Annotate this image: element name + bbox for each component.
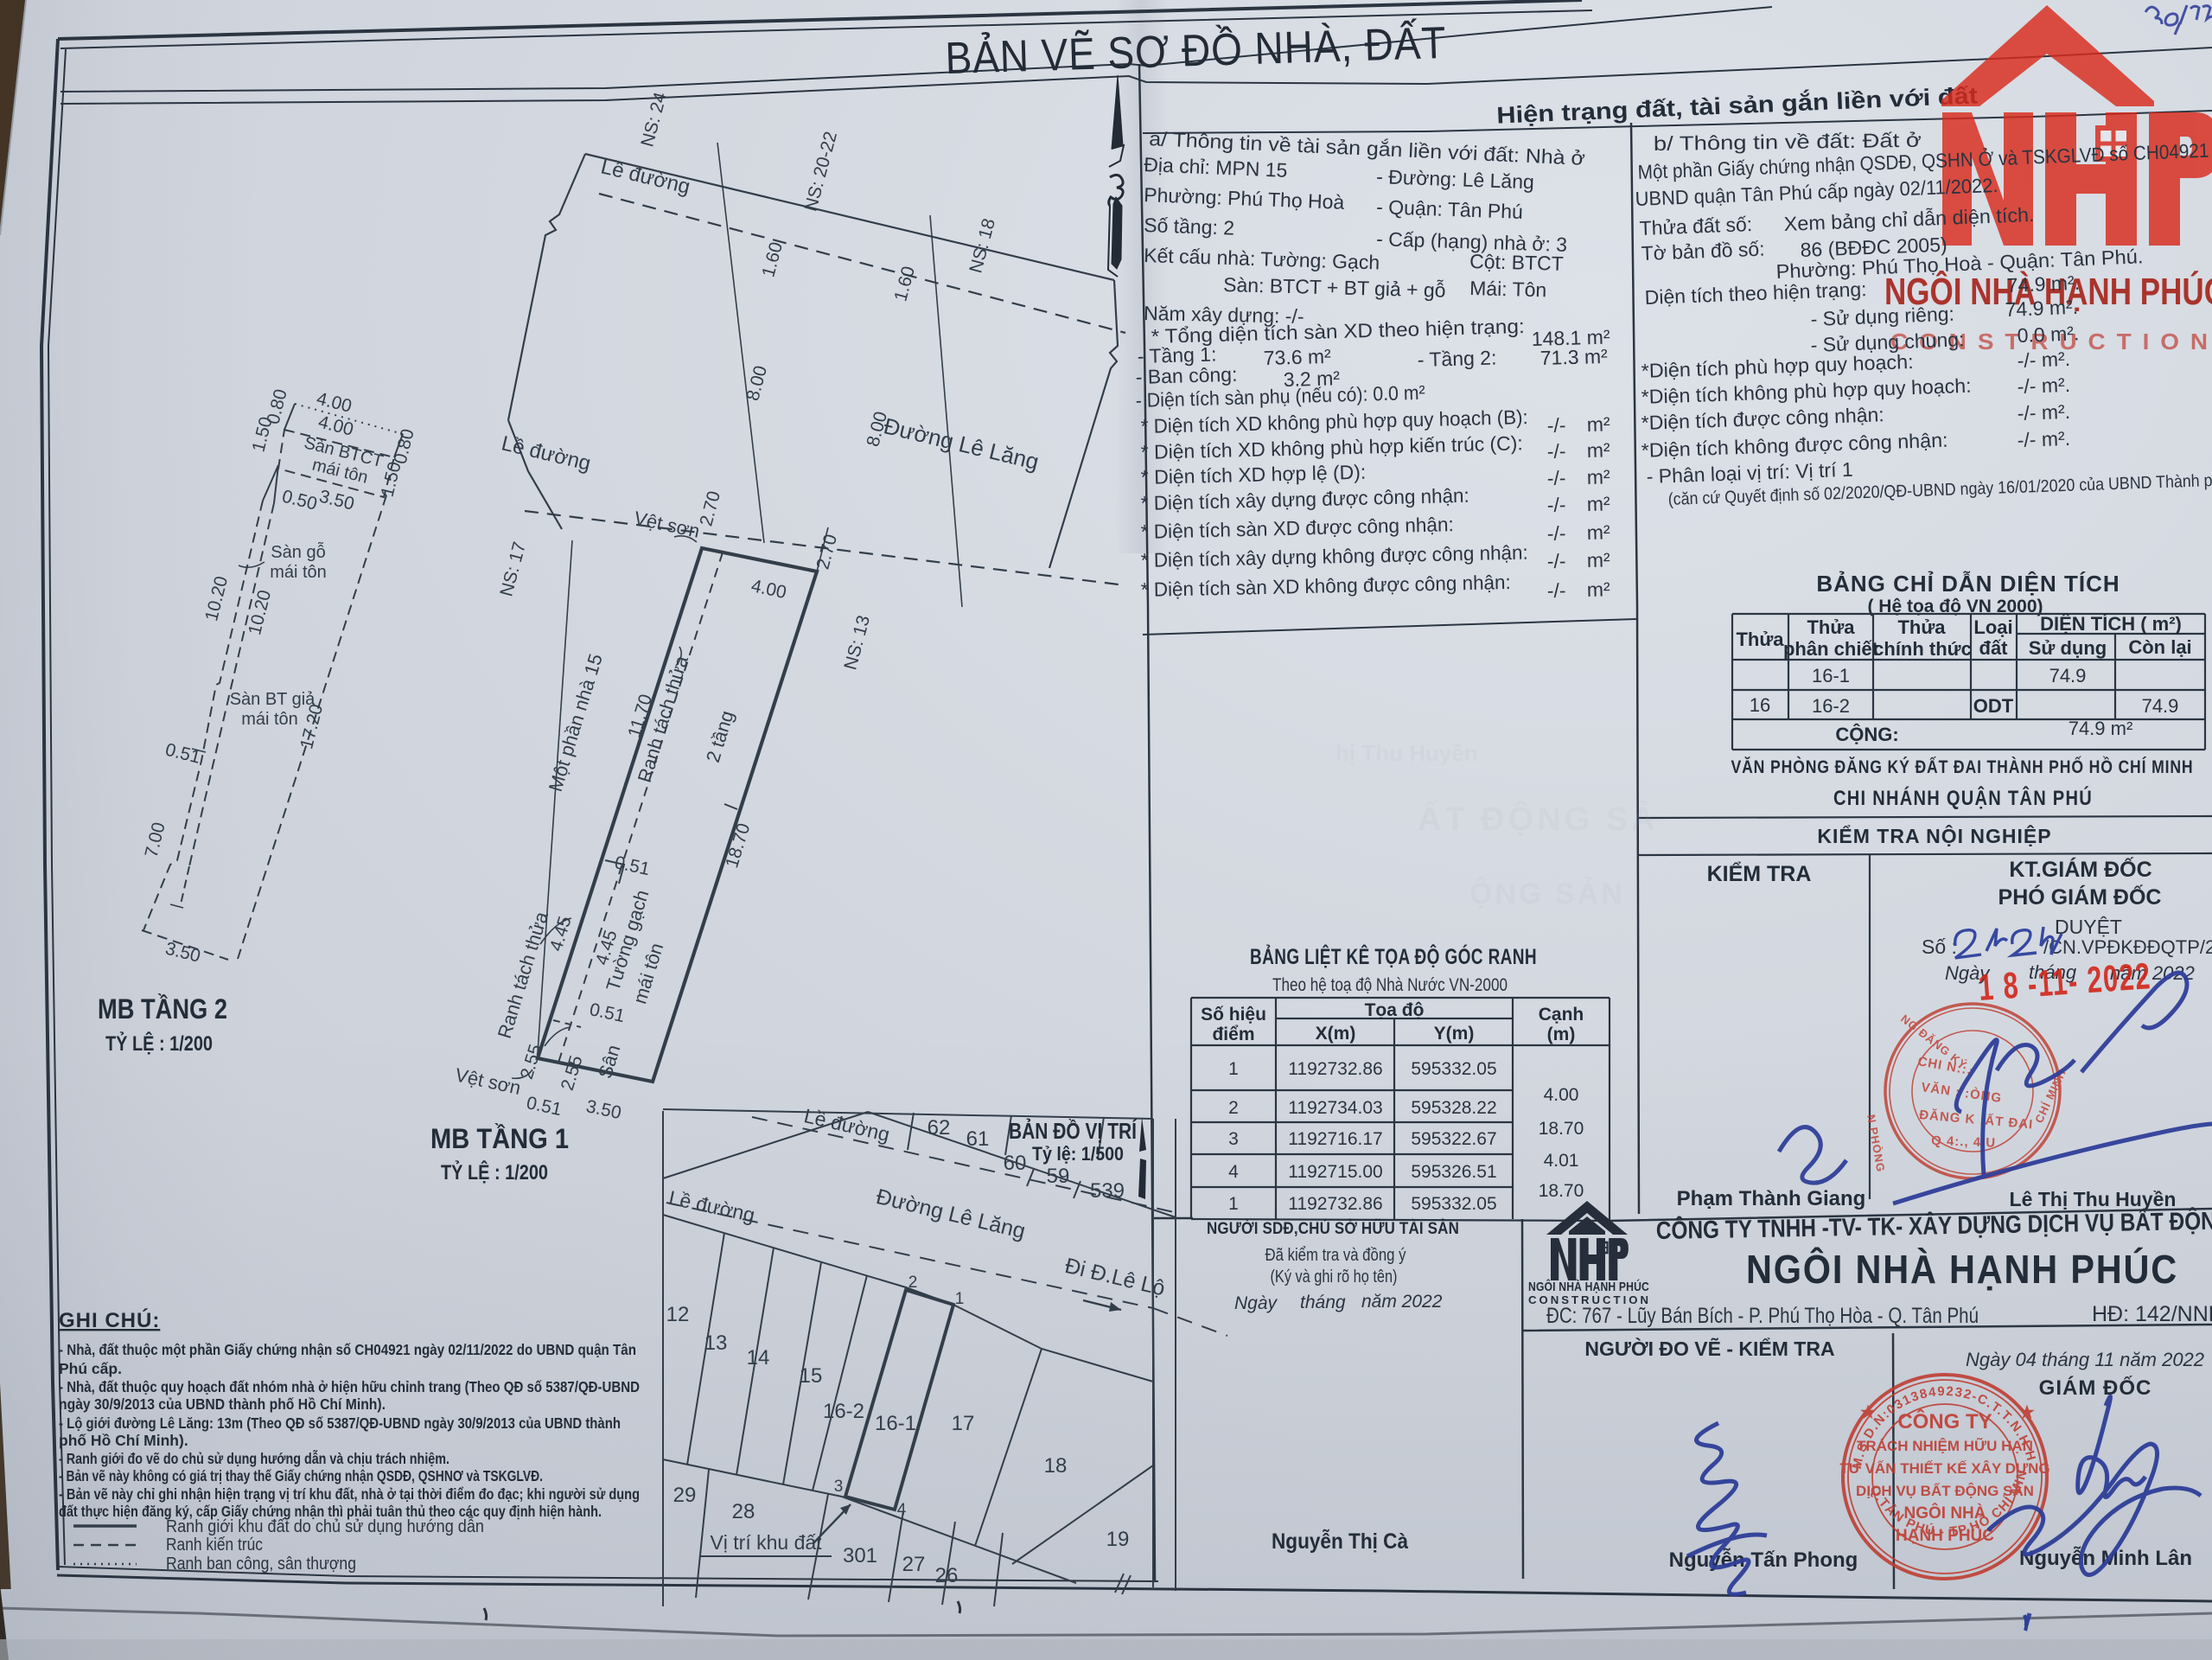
svg-text:Tỷ lệ: 1/500: Tỷ lệ: 1/500: [1032, 1143, 1124, 1165]
svg-text:1192715.00: 1192715.00: [1288, 1162, 1382, 1182]
svg-text:Mái: Tôn: Mái: Tôn: [1469, 277, 1547, 301]
svg-text:GIÁM ĐỐC: GIÁM ĐỐC: [2039, 1376, 2152, 1400]
svg-text:phố Hồ Chí Minh).: phố Hồ Chí Minh).: [59, 1432, 188, 1449]
svg-text:Ngày: Ngày: [1234, 1293, 1278, 1313]
svg-text:Thửa: Thửa: [1807, 616, 1855, 638]
svg-text:74.9: 74.9: [2049, 665, 2087, 686]
svg-text:BẢNG LIỆT KÊ TỌA ĐỘ GÓC RANH: BẢNG LIỆT KÊ TỌA ĐỘ GÓC RANH: [1250, 943, 1537, 969]
svg-text:15: 15: [800, 1364, 823, 1388]
svg-text:Q 4:., 4IU: Q 4:., 4IU: [1931, 1133, 1997, 1151]
svg-text:1192716.17: 1192716.17: [1288, 1129, 1382, 1149]
svg-text:ODT: ODT: [1973, 695, 2014, 717]
svg-text:- Nhà, đất thuộc một phần Giấy: - Nhà, đất thuộc một phần Giấy chứng nhậ…: [59, 1341, 636, 1358]
svg-text:0.0 m².: 0.0 m².: [2017, 322, 2080, 347]
svg-text:60: 60: [1004, 1152, 1027, 1175]
svg-text:- Ranh giới đo vẽ do chủ sử dụ: - Ranh giới đo vẽ do chủ sử dụng hướng d…: [59, 1449, 449, 1467]
svg-text:4: 4: [1228, 1162, 1239, 1182]
svg-text:3: 3: [834, 1478, 844, 1496]
svg-text:-/-: -/-: [1546, 493, 1565, 516]
svg-text:595322.67: 595322.67: [1411, 1129, 1496, 1149]
svg-text:1192732.86: 1192732.86: [1288, 1059, 1382, 1079]
svg-text:hị Thu Huyền: hị Thu Huyền: [1335, 740, 1478, 766]
svg-text:NGƯỜI ĐO VẼ - KIỂM TRA: NGƯỜI ĐO VẼ - KIỂM TRA: [1584, 1337, 1834, 1360]
svg-text:595332.05: 595332.05: [1411, 1194, 1496, 1214]
svg-text:Cạnh: Cạnh: [1539, 1005, 1584, 1025]
svg-text:KT.GIÁM ĐỐC: KT.GIÁM ĐỐC: [2009, 856, 2151, 882]
svg-text:71.3 m²: 71.3 m²: [1539, 345, 1608, 369]
svg-text:16-2: 16-2: [1812, 695, 1850, 717]
svg-text:(m): (m): [1547, 1025, 1576, 1044]
svg-text:Còn lại: Còn lại: [2128, 636, 2191, 658]
svg-text:- Ban công:: - Ban công:: [1135, 363, 1237, 388]
svg-text:NGÔI NHÀ HẠNH PHÚC: NGÔI NHÀ HẠNH PHÚC: [1746, 1247, 2178, 1292]
svg-text:59: 59: [1047, 1165, 1070, 1188]
svg-text:X(m): X(m): [1316, 1024, 1356, 1044]
svg-text:phân chiết: phân chiết: [1783, 638, 1879, 660]
svg-text:18.70: 18.70: [1539, 1181, 1584, 1201]
svg-text:Y(m): Y(m): [1434, 1024, 1475, 1044]
svg-text:ẤT ĐỘNG SẢ: ẤT ĐỘNG SẢ: [1418, 799, 1659, 838]
svg-text:16-1: 16-1: [875, 1412, 916, 1435]
svg-text:Ranh ban công, sân thượng: Ranh ban công, sân thượng: [166, 1555, 356, 1574]
svg-text:Số hiệu: Số hiệu: [1201, 1005, 1266, 1025]
svg-text:Phú cấp.: Phú cấp.: [59, 1360, 122, 1377]
svg-text:VĂN PHÒNG ĐĂNG KÝ ĐẤT ĐAI THÀN: VĂN PHÒNG ĐĂNG KÝ ĐẤT ĐAI THÀNH PHỐ HỒ C…: [1731, 757, 2194, 777]
svg-text:Số tầng: 2: Số tầng: 2: [1144, 214, 1235, 239]
svg-text:Tờ bản đồ số:: Tờ bản đồ số:: [1641, 238, 1765, 265]
svg-text:2: 2: [1228, 1098, 1239, 1118]
svg-text:TRÁCH NHIỆM HỮU HẠN: TRÁCH NHIỆM HỮU HẠN: [1857, 1437, 2033, 1454]
svg-text:Lê Thị Thu Huyền: Lê Thị Thu Huyền: [2010, 1188, 2177, 1210]
svg-text:-/-: -/-: [1546, 521, 1565, 545]
svg-text:3: 3: [1228, 1129, 1239, 1149]
svg-text:TƯ VẤN THIẾT KẾ XÂY DỰNG: TƯ VẤN THIẾT KẾ XÂY DỰNG: [1839, 1460, 2049, 1477]
svg-text:Sàn BT giả: Sàn BT giả: [230, 690, 316, 709]
svg-text:ĐC: 767 - Lũy Bán Bích - P. Ph: ĐC: 767 - Lũy Bán Bích - P. Phú Thọ Hòa …: [1546, 1304, 1979, 1328]
svg-text:Sử dụng: Sử dụng: [2029, 637, 2107, 659]
svg-text:NGÔI NHÀ HẠNH PHÚC: NGÔI NHÀ HẠNH PHÚC: [1528, 1279, 1649, 1294]
svg-text:Phạm Thành Giang: Phạm Thành Giang: [1677, 1187, 1866, 1210]
svg-text:m²: m²: [1586, 438, 1610, 462]
svg-text:301: 301: [843, 1544, 877, 1567]
svg-text:16-1: 16-1: [1812, 665, 1850, 686]
svg-text:- Bản vẽ này không có giá trị: - Bản vẽ này không có giá trị thay thế G…: [59, 1467, 543, 1484]
svg-text:1192734.03: 1192734.03: [1288, 1098, 1382, 1118]
svg-text:595326.51: 595326.51: [1411, 1162, 1496, 1182]
svg-text:CỘNG:: CỘNG:: [1835, 724, 1898, 745]
svg-text:★: ★: [1860, 1403, 1876, 1422]
svg-text:- Bản vẽ này chỉ ghi nhận hiện: - Bản vẽ này chỉ ghi nhận hiện trạng vị …: [59, 1485, 640, 1503]
svg-text:m²: m²: [1586, 520, 1610, 544]
svg-text:Tọa độ: Tọa độ: [1365, 1000, 1425, 1020]
svg-text:74.9 m²: 74.9 m²: [2069, 718, 2133, 739]
svg-text:61: 61: [966, 1127, 990, 1151]
svg-text:m²: m²: [1587, 578, 1611, 601]
svg-text:74.9 m².: 74.9 m².: [2005, 296, 2078, 321]
svg-text:539: 539: [1090, 1179, 1125, 1203]
svg-text:74.9: 74.9: [2142, 695, 2179, 717]
svg-text:Loại: Loại: [1973, 616, 2012, 638]
svg-text:Số :: Số :: [1922, 935, 1957, 958]
svg-text:Vị trí khu đất: Vị trí khu đất: [710, 1531, 822, 1554]
svg-text:mái tôn: mái tôn: [241, 710, 298, 729]
svg-text:KIỂM TRA: KIỂM TRA: [1707, 861, 1812, 886]
svg-text:-/- m².: -/- m².: [2017, 427, 2070, 451]
svg-text:16: 16: [1750, 694, 1770, 716]
svg-text:Ranh giới khu đất do chủ sử dụ: Ranh giới khu đất do chủ sử dụng hướng d…: [166, 1516, 484, 1536]
svg-text:4.01: 4.01: [1544, 1151, 1579, 1171]
svg-text:18: 18: [1044, 1454, 1068, 1478]
svg-text:NGƯỜI SDĐ,CHỦ SỞ HỮU TÀI SẢN: NGƯỜI SDĐ,CHỦ SỞ HỮU TÀI SẢN: [1207, 1219, 1459, 1238]
svg-text:m²: m²: [1586, 492, 1610, 515]
svg-text:năm 2022: năm 2022: [1361, 1292, 1443, 1312]
svg-text:62: 62: [928, 1116, 951, 1140]
svg-text:- Lộ giới đường Lê Lăng: 13m: - Lộ giới đường Lê Lăng: 13m (Theo QĐ số…: [59, 1414, 621, 1432]
svg-text:-/-: -/-: [1546, 466, 1565, 489]
svg-text:tháng: tháng: [1300, 1293, 1346, 1312]
svg-text:26: 26: [935, 1564, 959, 1587]
svg-text:Thửa đất số:: Thửa đất số:: [1639, 213, 1752, 239]
svg-text:/CN.VPĐKĐĐQTP/2022: /CN.VPĐKĐĐQTP/2022: [2043, 936, 2212, 958]
svg-text:74.9 m².: 74.9 m².: [2006, 271, 2080, 297]
svg-text:19: 19: [1106, 1528, 1130, 1551]
svg-text:Nguyễn Thị Cà: Nguyễn Thị Cà: [1272, 1528, 1408, 1554]
svg-text:ngày 30/9/2013 của UBND thành: ngày 30/9/2013 của UBND thành phố Hồ Chí…: [59, 1395, 386, 1413]
svg-text:28: 28: [732, 1500, 755, 1523]
svg-text:18.70: 18.70: [1539, 1119, 1584, 1139]
svg-text:CHI NHÁNH QUẬN TÂN PHÚ: CHI NHÁNH QUẬN TÂN PHÚ: [1833, 786, 2093, 810]
svg-text:mái tôn: mái tôn: [270, 563, 327, 582]
svg-text:TỶ LỆ : 1/200: TỶ LỆ : 1/200: [105, 1031, 213, 1056]
svg-text:27: 27: [902, 1553, 926, 1576]
svg-text:595328.22: 595328.22: [1411, 1098, 1496, 1118]
svg-text:Cột: BTCT: Cột: BTCT: [1469, 250, 1564, 275]
svg-text:- Tầng 2:: - Tầng 2:: [1417, 346, 1496, 371]
svg-text:1: 1: [1228, 1059, 1239, 1079]
svg-text:Nguyễn Minh Lân: Nguyễn Minh Lân: [2019, 1546, 2192, 1570]
svg-text:ỘNG SẢN: ỘNG SẢN: [1469, 877, 1625, 910]
svg-text:HẠNH PHÚC: HẠNH PHÚC: [1896, 1526, 1994, 1545]
svg-text:1192732.86: 1192732.86: [1288, 1194, 1382, 1214]
svg-text:m²: m²: [1586, 465, 1610, 488]
svg-text:1: 1: [1228, 1194, 1239, 1214]
svg-text:-/- m².: -/- m².: [2017, 373, 2070, 398]
svg-text:-/-: -/-: [1547, 579, 1566, 602]
svg-text:MB TẦNG 2: MB TẦNG 2: [98, 993, 227, 1025]
svg-text:Ranh kiến trúc: Ranh kiến trúc: [166, 1535, 263, 1555]
svg-text:(Ký và ghi rõ họ tên): (Ký và ghi rõ họ tên): [1271, 1267, 1398, 1286]
svg-text:Sàn gỗ: Sàn gỗ: [271, 542, 325, 562]
svg-text:PHÓ GIÁM ĐỐC: PHÓ GIÁM ĐỐC: [1998, 884, 2162, 910]
svg-text:73.6 m²: 73.6 m²: [1263, 345, 1331, 369]
svg-text:TỶ LỆ : 1/200: TỶ LỆ : 1/200: [441, 1159, 548, 1184]
svg-text:NGÔI NHÀ: NGÔI NHÀ: [1904, 1504, 1986, 1523]
svg-text:17: 17: [952, 1412, 975, 1435]
svg-text:BẢNG CHỈ DẪN DIỆN TÍCH: BẢNG CHỈ DẪN DIỆN TÍCH: [1816, 571, 2120, 597]
svg-text:Theo hệ toạ độ Nhà Nước VN-200: Theo hệ toạ độ Nhà Nước VN-2000: [1272, 975, 1508, 995]
svg-text:-/-: -/-: [1546, 413, 1565, 437]
svg-text:Thửa: Thửa: [1897, 616, 1946, 638]
svg-text:-/-: -/-: [1546, 439, 1565, 463]
svg-text:CÔNG TY: CÔNG TY: [1897, 1409, 1992, 1433]
svg-text:GHI CHÚ:: GHI CHÚ:: [59, 1308, 160, 1332]
svg-text:đất: đất: [1979, 637, 2009, 659]
svg-text:4: 4: [897, 1501, 907, 1519]
svg-text:13: 13: [704, 1331, 728, 1355]
svg-text:4.00: 4.00: [1544, 1085, 1579, 1105]
svg-text:★: ★: [2019, 1403, 2035, 1422]
svg-text:-/-: -/-: [1547, 550, 1566, 572]
svg-text:-/- m².: -/- m².: [2017, 348, 2070, 372]
svg-text:m²: m²: [1586, 412, 1610, 436]
svg-text:2: 2: [908, 1274, 918, 1292]
svg-text:DỊCH VỤ BẤT ĐỘNG SẢN: DỊCH VỤ BẤT ĐỘNG SẢN: [1856, 1483, 2034, 1499]
svg-text:1: 1: [955, 1290, 965, 1308]
svg-text:chính thức: chính thức: [1873, 638, 1972, 660]
svg-text:Thửa: Thửa: [1736, 629, 1784, 650]
svg-text:HĐ: 142/NNHP: HĐ: 142/NNHP: [2092, 1302, 2212, 1326]
svg-text:m²: m²: [1587, 548, 1611, 571]
svg-text:KIỂM TRA NỘI NGHIỆP: KIỂM TRA NỘI NGHIỆP: [1817, 824, 2051, 847]
svg-text:Ngày 04 tháng 11 năm 2: Ngày 04 tháng 11 năm 2022: [1966, 1349, 2204, 1370]
svg-text:Đã kiểm tra và đồng ý: Đã kiểm tra và đồng ý: [1265, 1246, 1406, 1265]
svg-text:DUYỆT: DUYỆT: [2055, 916, 2122, 938]
svg-text:29: 29: [673, 1484, 697, 1507]
svg-text:595332.05: 595332.05: [1411, 1059, 1496, 1079]
svg-text:16-2: 16-2: [823, 1400, 864, 1423]
svg-text:14: 14: [747, 1346, 770, 1369]
svg-text:điểm: điểm: [1212, 1025, 1254, 1044]
svg-text:-/- m².: -/- m².: [2017, 400, 2070, 425]
svg-text:MB TẦNG 1: MB TẦNG 1: [430, 1123, 569, 1154]
svg-text:12: 12: [666, 1303, 690, 1326]
svg-text:DIỆN TÍCH ( m²): DIỆN TÍCH ( m²): [2040, 613, 2182, 635]
svg-text:BẢN ĐỒ VỊ TRÍ: BẢN ĐỒ VỊ TRÍ: [1009, 1118, 1138, 1144]
svg-text:- Nhà, đất thuộc quy hoạch đấ: - Nhà, đất thuộc quy hoạch đất nhóm nhà …: [59, 1378, 640, 1395]
